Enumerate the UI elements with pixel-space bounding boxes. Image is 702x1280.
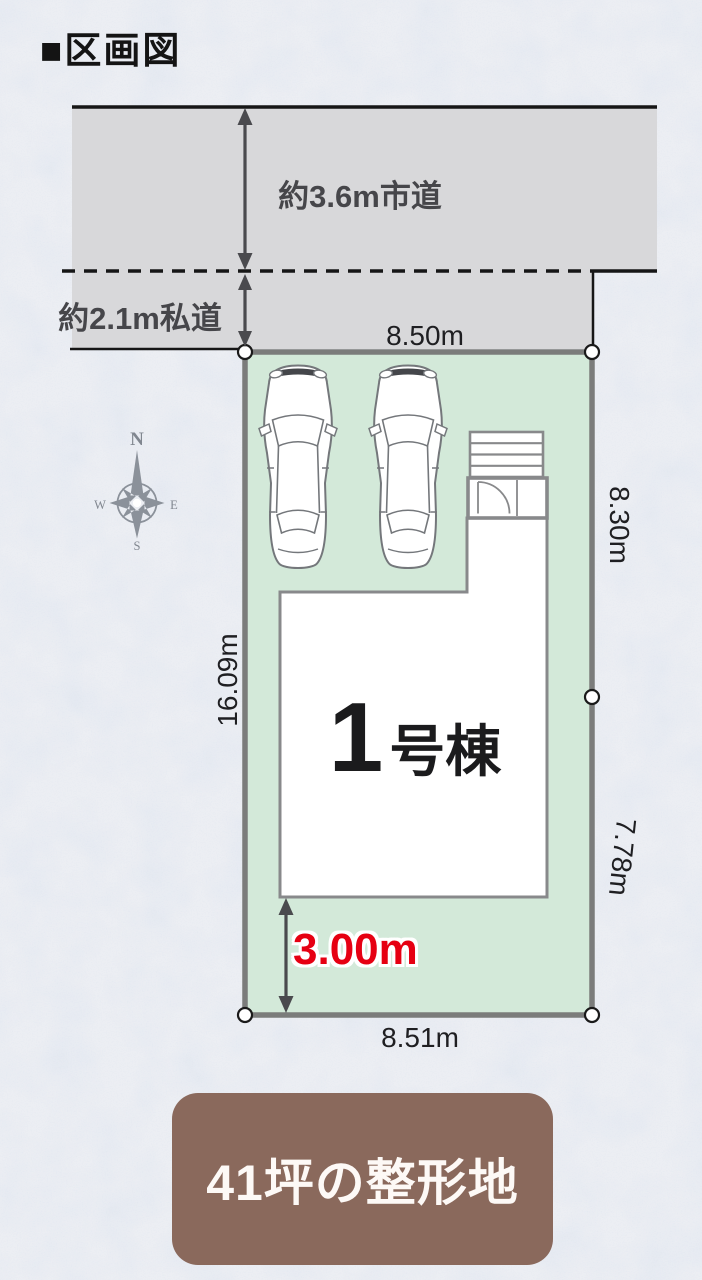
- compass-west-label: W: [94, 498, 106, 512]
- compass-rose-icon: N E S W: [94, 429, 178, 553]
- car-icon: [259, 366, 337, 569]
- entrance-steps: [470, 432, 543, 477]
- land-area-banner-label: 41坪の整形地: [206, 1143, 519, 1215]
- setback-dimension: 3.00m: [293, 925, 418, 975]
- compass-north-label: N: [130, 429, 144, 450]
- lot-plan-page: N E S W ■区画図 約3.6m市道 約2.1m私道 8.50m 8.51m…: [0, 0, 702, 1280]
- dimension-right-upper: 8.30m: [603, 480, 635, 570]
- car-icon: [369, 366, 447, 569]
- land-area-banner: 41坪の整形地: [172, 1093, 553, 1265]
- city-road-label: 約3.6m市道: [250, 171, 470, 216]
- private-road-label: 約2.1m私道: [42, 293, 238, 338]
- compass-east-label: E: [170, 498, 178, 512]
- dimension-bottom: 8.51m: [355, 1022, 485, 1054]
- building-number-suffix: 号棟: [389, 724, 501, 780]
- entrance-porch: [468, 478, 547, 518]
- building-number-label: 1 号棟: [300, 688, 530, 786]
- compass-south-label: S: [134, 539, 141, 553]
- dimension-left: 16.09m: [212, 625, 244, 735]
- building-number: 1: [329, 688, 384, 786]
- page-title: ■区画図: [40, 20, 181, 74]
- dimension-top: 8.50m: [360, 320, 490, 352]
